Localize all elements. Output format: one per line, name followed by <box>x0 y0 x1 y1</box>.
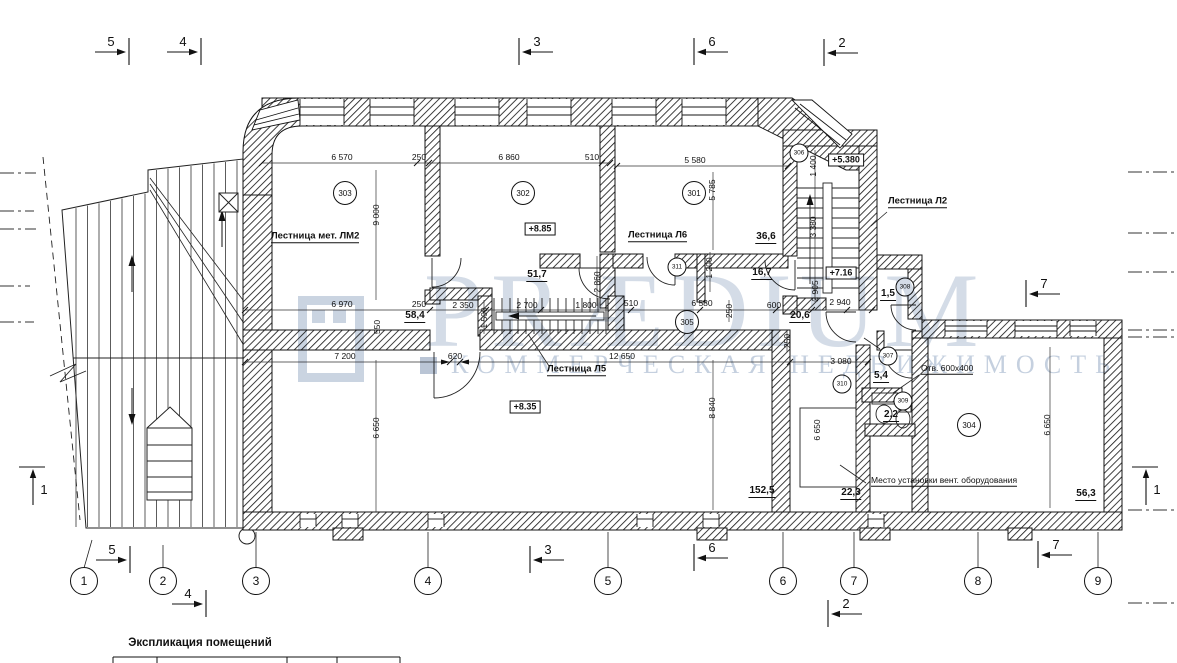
section-marker-label: 4 <box>179 34 186 49</box>
section-marker: 2 <box>828 596 862 627</box>
vent-equipment-area <box>800 408 856 487</box>
explication-table-grid <box>113 657 400 663</box>
roof-plan <box>43 157 255 544</box>
walls <box>243 98 1122 540</box>
section-marker-label: 3 <box>544 542 551 557</box>
section-marker-label: 4 <box>184 586 191 601</box>
section-marker: 7 <box>1038 537 1072 568</box>
section-marker: 5 <box>95 34 129 65</box>
section-marker-label: 3 <box>533 34 540 49</box>
section-marker-label: 7 <box>1052 537 1059 552</box>
section-marker-label: 5 <box>107 34 114 49</box>
floor-plan-drawing: 54362754362711 <box>0 0 1177 663</box>
section-marker: 6 <box>694 540 728 571</box>
section-marker-label: 2 <box>838 35 845 50</box>
section-marker: 4 <box>172 586 206 617</box>
section-marker-label: 2 <box>842 596 849 611</box>
section-marker-label: 7 <box>1040 276 1047 291</box>
section-marker: 3 <box>530 542 564 573</box>
section-marker: 7 <box>1026 276 1060 307</box>
section-marker-label: 1 <box>1153 482 1160 497</box>
section-marker: 2 <box>824 35 858 66</box>
section-marker: 5 <box>96 542 130 573</box>
section-marker: 4 <box>167 34 201 65</box>
floor-plan-page: 54362754362711 Экспликация помещений 6 5… <box>0 0 1177 663</box>
toilet-bowl <box>876 405 892 423</box>
section-marker: 6 <box>694 34 728 65</box>
section-marker: 1 <box>19 467 48 505</box>
section-marker: 3 <box>519 34 553 65</box>
section-marker-label: 5 <box>108 542 115 557</box>
section-marker-label: 6 <box>708 540 715 555</box>
section-marker-label: 1 <box>40 482 47 497</box>
section-marker: 1 <box>1132 467 1161 505</box>
section-marker-label: 6 <box>708 34 715 49</box>
